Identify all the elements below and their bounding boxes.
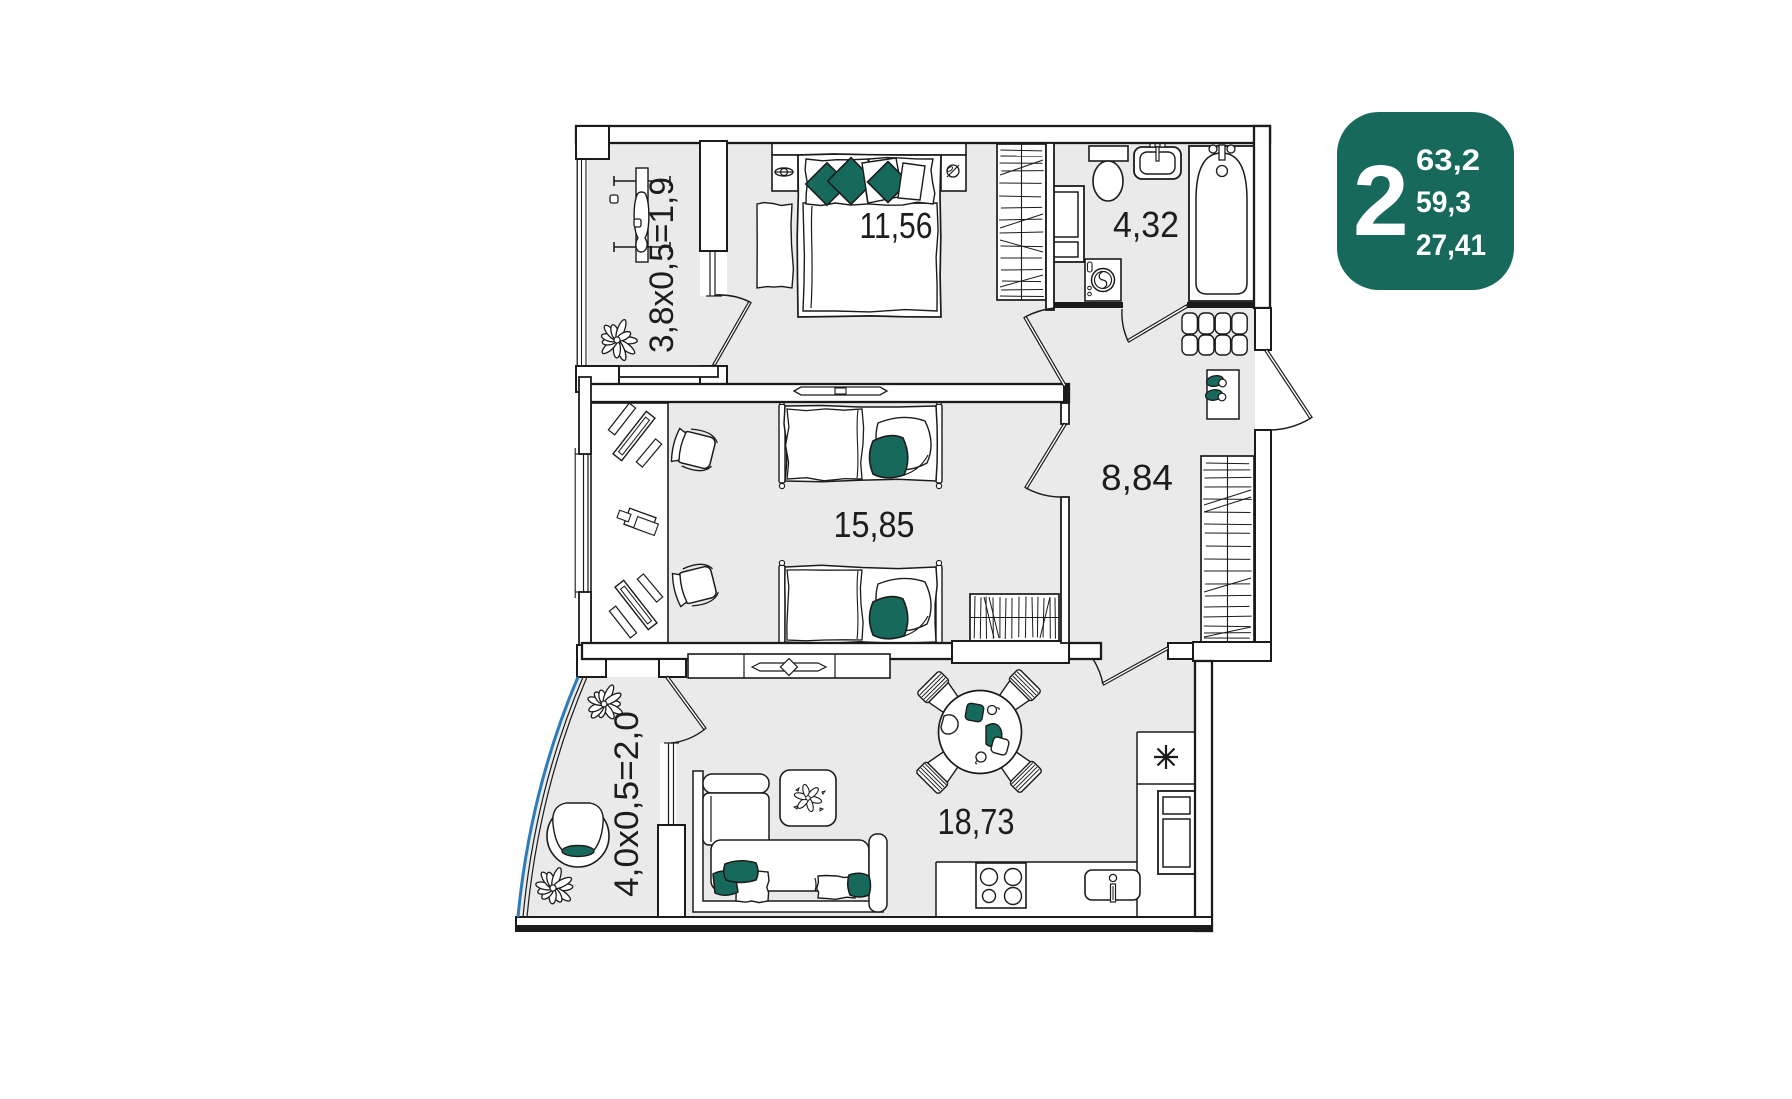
svg-text:59,3: 59,3 [1416, 186, 1471, 219]
svg-text:11,56: 11,56 [860, 205, 933, 246]
svg-text:3,8x0,5=1,9: 3,8x0,5=1,9 [643, 177, 681, 353]
svg-text:4,0x0,5=2,0: 4,0x0,5=2,0 [608, 711, 646, 897]
svg-text:63,2: 63,2 [1416, 144, 1480, 177]
svg-text:4,32: 4,32 [1113, 204, 1179, 245]
svg-text:8,84: 8,84 [1101, 457, 1173, 498]
svg-text:15,85: 15,85 [834, 504, 915, 545]
svg-text:18,73: 18,73 [938, 801, 1015, 842]
svg-text:27,41: 27,41 [1416, 229, 1486, 262]
svg-text:2: 2 [1353, 145, 1409, 257]
